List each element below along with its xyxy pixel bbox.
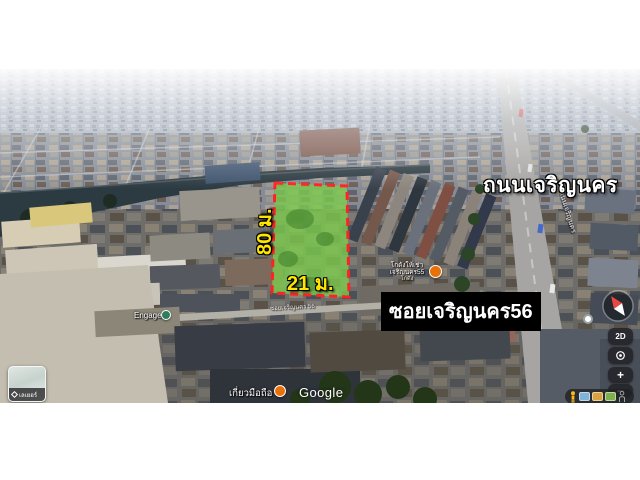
page: ถนนเจริญนคร ซอยเจริญนคร 56 โกดังให้เช่า … [0, 0, 640, 480]
shop-pin-icon [429, 265, 442, 278]
imagery-thumbnail-1[interactable] [579, 392, 590, 401]
zoom-in-button[interactable]: + [608, 367, 633, 383]
zoom-in-label: + [617, 368, 624, 382]
plot-depth-label: 80 ม. [248, 208, 280, 255]
poi-engage-label: Engage [134, 311, 162, 320]
poi-shop-label: เกี่ยวมือถือ [229, 386, 272, 401]
buildings-3d-icon [618, 391, 626, 403]
poi-warehouse-category: โกดัง [382, 276, 432, 283]
my-location-icon [615, 350, 626, 361]
aerial-imagery [0, 69, 640, 403]
poi-warehouse-line2: เจริญนคร55 [382, 269, 432, 276]
mode-2d-button[interactable]: 2D [608, 328, 633, 345]
transit-station-icon[interactable] [583, 314, 593, 324]
my-location-button[interactable] [608, 347, 633, 364]
imagery-thumbnail-3[interactable] [605, 392, 616, 401]
layers-label: เลเยอร์ [19, 390, 37, 400]
poi-warehouse-line1: โกดังให้เช่า [382, 262, 432, 269]
shop-pin-icon [274, 385, 286, 397]
soi-annotation: ซอยเจริญนคร56 [381, 292, 541, 331]
map-viewport[interactable]: ถนนเจริญนคร ซอยเจริญนคร 56 โกดังให้เช่า … [0, 69, 640, 403]
mode-2d-label: 2D [615, 332, 625, 341]
main-road-annotation: ถนนเจริญนคร [483, 169, 618, 202]
pegman-icon [569, 391, 577, 403]
plot-width-label: 21 ม. [287, 267, 334, 299]
layers-icon [11, 391, 18, 398]
compass[interactable] [602, 290, 634, 322]
imagery-thumbnail-2[interactable] [592, 392, 603, 401]
place-pin-icon [161, 310, 171, 320]
google-logo: Google [299, 385, 343, 400]
imagery-toolbar[interactable] [565, 389, 634, 403]
layers-button[interactable]: เลเยอร์ [8, 366, 46, 402]
